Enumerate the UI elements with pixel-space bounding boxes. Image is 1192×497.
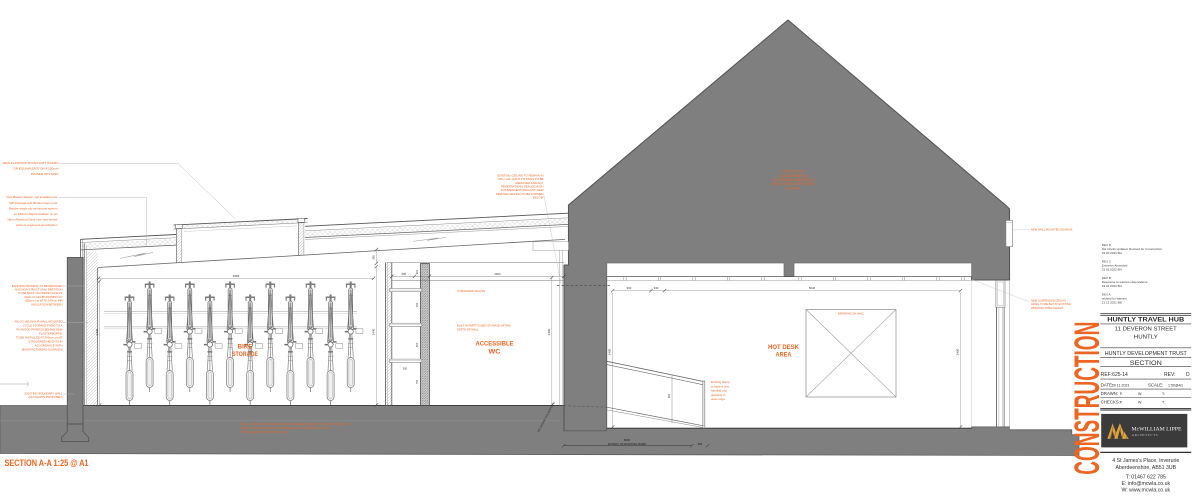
svg-text:WINDOW LINTEL HEIGHT: WINDOW LINTEL HEIGHT bbox=[1031, 306, 1064, 310]
svg-text:900: 900 bbox=[627, 286, 632, 290]
svg-text:Bauder single ply membrane sys: Bauder single ply membrane system bbox=[9, 206, 58, 210]
svg-text:4965: 4965 bbox=[233, 274, 240, 278]
svg-text:5046: 5046 bbox=[809, 286, 816, 290]
svg-text:STORAGE: STORAGE bbox=[232, 351, 258, 358]
svg-text:on 150mm Rigid Insulation on a: on 150mm Rigid Insulation on an bbox=[14, 212, 58, 216]
svg-text:21 12 2021 BB: 21 12 2021 BB bbox=[1102, 301, 1122, 305]
svg-text:T:: T: bbox=[1162, 392, 1165, 396]
svg-text:18mm Plywood Deck over new tim: 18mm Plywood Deck over new timber bbox=[7, 218, 57, 222]
svg-text:SUSPENDED CEILING: SUSPENDED CEILING bbox=[457, 289, 485, 293]
svg-text:2400: 2400 bbox=[956, 348, 960, 355]
svg-text:P.: P. bbox=[1120, 400, 1123, 404]
svg-text:SECTION: SECTION bbox=[1130, 360, 1162, 367]
svg-text:W: www.mcwla.co.uk: W: www.mcwla.co.uk bbox=[1121, 487, 1170, 493]
svg-text:(NO WORKS PROPOSED): (NO WORKS PROPOSED) bbox=[28, 395, 62, 399]
svg-text:1:50@A1: 1:50@A1 bbox=[1168, 383, 1183, 387]
svg-text:BIKE: BIKE bbox=[238, 343, 253, 350]
svg-text:2440: 2440 bbox=[371, 328, 375, 335]
svg-text:BUILT IN PARTITIONED STORAGE W: BUILT IN PARTITIONED STORAGE WITHIN bbox=[457, 324, 511, 328]
svg-text:outer edge: outer edge bbox=[711, 397, 725, 401]
svg-text:DEPTH OF WALL: DEPTH OF WALL bbox=[457, 327, 479, 331]
svg-text:SECTION A-A 1:25 @ A1: SECTION A-A 1:25 @ A1 bbox=[5, 458, 89, 468]
svg-text:HUNTLY TRAVEL HUB: HUNTLY TRAVEL HUB bbox=[1107, 317, 1184, 324]
svg-text:NEW SUSPENDED CEILING: NEW SUSPENDED CEILING bbox=[1031, 298, 1066, 302]
svg-text:330: 330 bbox=[654, 286, 659, 290]
svg-text:HUNTLY: HUNTLY bbox=[1134, 334, 1158, 340]
svg-text:BRANDING ON WALL: BRANDING ON WALL bbox=[838, 312, 865, 316]
svg-text:MANUFACTURERS GUIDANCE: MANUFACTURERS GUIDANCE bbox=[22, 347, 63, 351]
svg-text:900: 900 bbox=[667, 393, 671, 398]
svg-text:Aberdeenshire, AB51 3UB: Aberdeenshire, AB51 3UB bbox=[1116, 465, 1177, 471]
svg-text:STORAGE WITHIN DEPTH OF WALL: STORAGE WITHIN DEPTH OF WALL bbox=[241, 430, 289, 434]
svg-text:CONTROL: CONTROL bbox=[785, 186, 801, 190]
svg-text:REF:625-14: REF:625-14 bbox=[1101, 372, 1128, 378]
svg-text:DRAWN:: DRAWN: bbox=[1101, 391, 1118, 396]
svg-text:NEW FLATROOF ROOFLIGHT (FAKRO: NEW FLATROOF ROOFLIGHT (FAKRO bbox=[3, 161, 59, 165]
svg-text:ACCESSIBLE: ACCESSIBLE bbox=[476, 340, 515, 347]
svg-text:300: 300 bbox=[697, 442, 702, 446]
svg-text:REV:: REV: bbox=[1164, 372, 1175, 378]
svg-text:OR EQUIVALENT) ON A 150mm: OR EQUIVALENT) ON A 150mm bbox=[13, 166, 59, 170]
svg-text:750: 750 bbox=[416, 379, 419, 384]
svg-text:HUNTLY DEVELOPMENT TRUST: HUNTLY DEVELOPMENT TRUST bbox=[1105, 351, 1188, 357]
svg-text:NEW WALL MOUNTED SIGNAGE: NEW WALL MOUNTED SIGNAGE bbox=[1031, 227, 1073, 231]
svg-text:joists to engineers specificat: joists to engineers specification bbox=[15, 223, 58, 227]
svg-text:500: 500 bbox=[416, 342, 419, 347]
svg-text:150: 150 bbox=[416, 302, 419, 307]
svg-text:2400: 2400 bbox=[608, 348, 612, 355]
svg-text:ARCHITECTS: ARCHITECTS bbox=[1132, 433, 1159, 437]
svg-text:09 11 2021: 09 11 2021 bbox=[1112, 383, 1130, 387]
svg-text:SIP drainage and filtration la: SIP drainage and filtration layer over bbox=[9, 201, 57, 205]
svg-text:LEVEL TO BE SET AT EXISTING: LEVEL TO BE SET AT EXISTING bbox=[1031, 302, 1071, 306]
svg-text:19 01 2022 BH: 19 01 2022 BH bbox=[1102, 284, 1122, 288]
svg-text:AREA: AREA bbox=[776, 351, 792, 358]
svg-text:INSULATION BETWEEN: INSULATION BETWEEN bbox=[31, 302, 62, 306]
svg-text:11 DEVERON STREET: 11 DEVERON STREET bbox=[1115, 327, 1178, 333]
svg-text:2400: 2400 bbox=[547, 328, 551, 335]
svg-text:BELOW: BELOW bbox=[533, 196, 544, 200]
svg-text:T.: T. bbox=[1162, 400, 1165, 404]
svg-text:New Bauder Sedum mat installed: New Bauder Sedum mat installed over bbox=[6, 195, 57, 199]
svg-text:2904: 2904 bbox=[494, 272, 501, 276]
svg-text:INSISED UPSTAND: INSISED UPSTAND bbox=[31, 172, 60, 176]
svg-text:E: info@mcwla.co.uk: E: info@mcwla.co.uk bbox=[1122, 481, 1171, 487]
svg-text:D: D bbox=[1186, 372, 1190, 378]
svg-text:McWILLIAM LIPPE: McWILLIAM LIPPE bbox=[1132, 427, 1183, 433]
svg-text:P.: P. bbox=[1120, 392, 1123, 396]
svg-text:4 St James's Place, Inverurie: 4 St James's Place, Inverurie bbox=[1112, 458, 1179, 464]
svg-text:03 02 2023 BH: 03 02 2023 BH bbox=[1102, 251, 1122, 255]
svg-text:WC: WC bbox=[489, 348, 501, 355]
svg-text:2440: 2440 bbox=[95, 328, 99, 335]
svg-text:500: 500 bbox=[403, 367, 408, 370]
svg-text:400: 400 bbox=[416, 269, 419, 274]
svg-text:15 02 2022 BH: 15 02 2022 BH bbox=[1102, 268, 1122, 272]
svg-text:CHECKS:: CHECKS: bbox=[1101, 399, 1120, 404]
svg-text:T: 01467 622 785: T: 01467 622 785 bbox=[1126, 474, 1166, 480]
svg-text:HOT DESK: HOT DESK bbox=[768, 344, 799, 351]
svg-text:W.: W. bbox=[1138, 400, 1142, 404]
svg-text:W.: W. bbox=[1138, 392, 1142, 396]
svg-text:SCALE:: SCALE: bbox=[1148, 382, 1163, 387]
svg-text:690: 690 bbox=[401, 272, 406, 276]
svg-text:EXTENT OF EXISTING RAMP: EXTENT OF EXISTING RAMP bbox=[608, 442, 646, 446]
svg-text:CONSTRUCTION: CONSTRUCTION bbox=[1067, 322, 1107, 475]
svg-text:390: 390 bbox=[371, 255, 375, 260]
